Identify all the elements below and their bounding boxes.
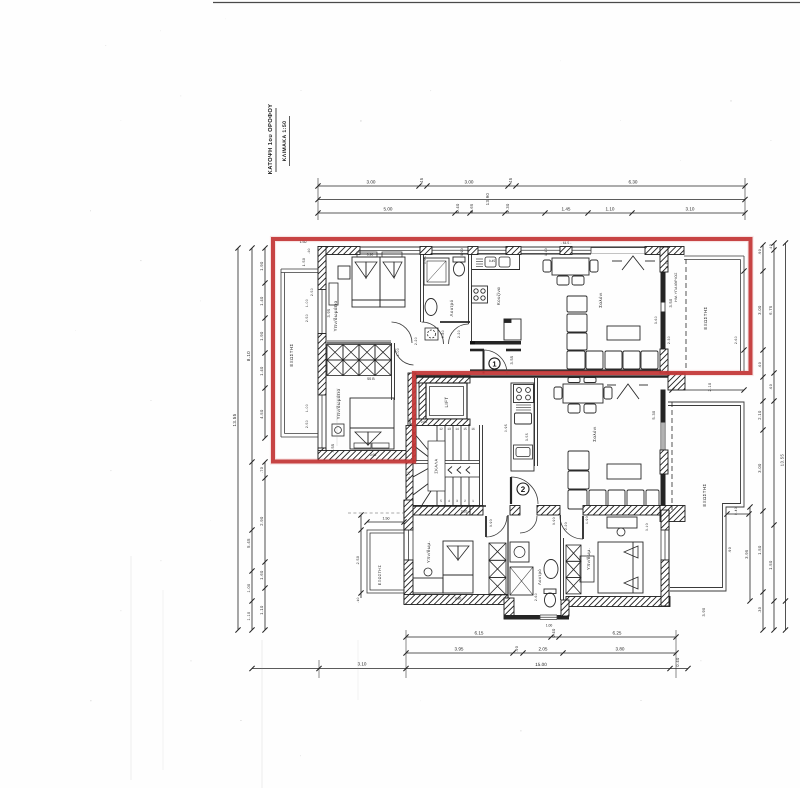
svg-text:13.55: 13.55 <box>232 413 237 426</box>
svg-text:55 Β: 55 Β <box>367 377 375 381</box>
svg-text:6.75: 6.75 <box>768 305 773 315</box>
svg-text:1.40: 1.40 <box>259 296 264 306</box>
svg-text:.10: .10 <box>356 597 360 603</box>
svg-text:0.20: 0.20 <box>665 260 669 268</box>
svg-text:.60: .60 <box>769 384 773 390</box>
svg-text:3.55: 3.55 <box>331 444 335 453</box>
svg-text:2: 2 <box>521 485 526 494</box>
svg-text:3.95: 3.95 <box>455 647 464 652</box>
svg-text:.45: .45 <box>508 177 513 184</box>
svg-text:ΕΞΩΣΤΗΣ: ΕΞΩΣΤΗΣ <box>702 483 707 506</box>
svg-text:1.05: 1.05 <box>423 256 427 264</box>
svg-text:3.00: 3.00 <box>367 180 376 185</box>
svg-text:ΣΚΑΛΑ: ΣΚΑΛΑ <box>434 458 439 473</box>
svg-text:1: 1 <box>472 499 474 503</box>
svg-text:2.05: 2.05 <box>539 647 548 652</box>
svg-text:3.80: 3.80 <box>616 647 625 652</box>
svg-text:2.50: 2.50 <box>356 556 360 565</box>
svg-text:Υπν/δωμ.: Υπν/δωμ. <box>426 541 431 563</box>
svg-text:3.55: 3.55 <box>525 433 529 441</box>
svg-text:3.60: 3.60 <box>654 316 658 324</box>
svg-text:12: 12 <box>439 427 443 431</box>
svg-text:.90: .90 <box>515 646 519 652</box>
svg-text:3.95: 3.95 <box>744 549 749 559</box>
svg-text:2.50: 2.50 <box>310 288 314 296</box>
svg-text:0.80: 0.80 <box>441 330 445 338</box>
svg-text:1.10: 1.10 <box>259 605 264 615</box>
svg-text:16: 16 <box>471 427 475 431</box>
svg-text:2.10: 2.10 <box>708 383 712 392</box>
svg-text:4: 4 <box>448 499 450 503</box>
svg-text:15: 15 <box>463 427 467 431</box>
svg-text:Υπν/δωμ.: Υπν/δωμ. <box>586 548 591 570</box>
svg-text:Λουτρό: Λουτρό <box>537 569 542 585</box>
svg-text:3: 3 <box>456 499 458 503</box>
svg-text:13.90: 13.90 <box>485 192 490 205</box>
svg-text:3.00: 3.00 <box>465 180 474 185</box>
svg-text:1.00: 1.00 <box>305 404 309 412</box>
svg-text:ΚΑΤΟΨΗ 1ου ΟΡΟΦΟΥ: ΚΑΤΟΨΗ 1ου ΟΡΟΦΟΥ <box>267 104 274 175</box>
svg-text:ΕΞΩΣΤΗΣ: ΕΞΩΣΤΗΣ <box>289 343 294 366</box>
svg-text:1.50: 1.50 <box>768 560 773 570</box>
svg-text:0.90: 0.90 <box>552 517 556 525</box>
svg-text:0.45: 0.45 <box>489 259 495 263</box>
svg-text:1.30: 1.30 <box>505 203 510 213</box>
svg-text:.90: .90 <box>728 547 732 553</box>
svg-text:.70: .70 <box>260 467 264 473</box>
svg-text:Σαλόνι: Σαλόνι <box>598 292 603 307</box>
svg-text:8.10: 8.10 <box>246 351 251 361</box>
svg-text:.30: .30 <box>758 607 762 613</box>
svg-text:ΚΛΙΜΑΚΑ 1:50: ΚΛΙΜΑΚΑ 1:50 <box>282 121 288 162</box>
svg-text:3.10: 3.10 <box>645 523 649 531</box>
svg-text:0.40: 0.40 <box>551 628 556 638</box>
svg-text:2.50: 2.50 <box>305 420 309 428</box>
svg-text:1.50: 1.50 <box>383 517 390 521</box>
svg-text:14: 14 <box>455 427 459 431</box>
svg-text:0.90: 0.90 <box>489 519 493 527</box>
svg-text:1.00: 1.00 <box>305 299 309 307</box>
svg-text:ΕΞΩΣΤΗΣ: ΕΞΩΣΤΗΣ <box>378 565 382 586</box>
svg-text:2.90: 2.90 <box>259 516 264 526</box>
svg-text:4.50: 4.50 <box>259 409 264 419</box>
svg-text:0.40: 0.40 <box>734 507 738 515</box>
svg-text:3.90: 3.90 <box>702 608 706 617</box>
svg-text:5: 5 <box>440 499 442 503</box>
svg-text:ΕΞΩΣΤΗΣ: ΕΞΩΣΤΗΣ <box>703 306 708 329</box>
svg-text:2.10: 2.10 <box>757 410 762 420</box>
svg-text:6.25: 6.25 <box>613 631 622 636</box>
svg-text:4.75: 4.75 <box>407 471 411 479</box>
svg-text:5.30: 5.30 <box>652 411 656 420</box>
svg-text:1.90: 1.90 <box>259 261 264 271</box>
svg-text:15.00: 15.00 <box>535 662 547 667</box>
svg-text:1: 1 <box>492 359 496 368</box>
svg-text:.45: .45 <box>419 177 424 184</box>
svg-text:1.00: 1.00 <box>396 348 400 356</box>
svg-text:2: 2 <box>464 499 466 503</box>
svg-text:13: 13 <box>447 427 451 431</box>
svg-text:2.20: 2.20 <box>414 337 418 345</box>
svg-text:6.30: 6.30 <box>629 180 638 185</box>
svg-text:2.20: 2.20 <box>564 522 568 530</box>
svg-text:.20: .20 <box>307 248 311 254</box>
svg-text:1.10: 1.10 <box>247 612 251 621</box>
svg-text:13.55: 13.55 <box>780 453 785 466</box>
svg-text:2.20: 2.20 <box>461 510 468 514</box>
svg-text:1.40: 1.40 <box>259 366 264 376</box>
svg-text:1.10: 1.10 <box>606 207 615 212</box>
svg-text:Σαλόνι: Σαλόνι <box>592 426 597 441</box>
svg-text:0.90: 0.90 <box>370 453 377 457</box>
svg-text:.60: .60 <box>758 362 762 368</box>
svg-text:Κουζίνα: Κουζίνα <box>496 287 501 305</box>
svg-text:2.30: 2.30 <box>667 336 671 344</box>
svg-text:3.55: 3.55 <box>510 356 514 365</box>
svg-text:.40: .40 <box>769 244 773 250</box>
svg-text:6.15: 6.15 <box>475 631 484 636</box>
svg-text:1.50: 1.50 <box>757 545 762 555</box>
svg-text:1.50: 1.50 <box>302 258 306 267</box>
svg-text:3.00: 3.00 <box>757 463 762 473</box>
svg-text:ΗΜ.ΥΠΑΙΘΡΙΟΣ: ΗΜ.ΥΠΑΙΘΡΙΟΣ <box>674 272 678 302</box>
svg-text:0.65: 0.65 <box>469 203 474 213</box>
svg-text:1.00: 1.00 <box>247 584 251 593</box>
svg-text:3.10: 3.10 <box>686 207 695 212</box>
svg-text:1.00: 1.00 <box>546 624 553 628</box>
svg-text:3.95: 3.95 <box>327 309 331 318</box>
svg-text:1.45: 1.45 <box>562 207 571 212</box>
svg-text:Λουτρό: Λουτρό <box>449 299 454 316</box>
svg-text:5.45: 5.45 <box>246 538 251 548</box>
svg-text:3.10: 3.10 <box>358 662 367 667</box>
svg-text:2.50: 2.50 <box>305 314 309 322</box>
svg-text:1.90: 1.90 <box>259 331 264 341</box>
svg-text:2.60: 2.60 <box>534 593 538 601</box>
svg-text:3.00: 3.00 <box>757 305 762 315</box>
svg-text:3.50: 3.50 <box>669 299 673 308</box>
svg-text:0.40: 0.40 <box>455 203 460 213</box>
svg-text:2.20: 2.20 <box>457 330 461 338</box>
svg-text:2.60: 2.60 <box>734 336 738 344</box>
svg-text:5.00: 5.00 <box>384 207 393 212</box>
svg-text:0.90: 0.90 <box>455 597 462 601</box>
svg-text:LIFT: LIFT <box>444 396 449 407</box>
svg-text:.90: .90 <box>758 249 762 255</box>
svg-text:0.90: 0.90 <box>367 253 374 257</box>
svg-text:1.60: 1.60 <box>259 570 264 580</box>
svg-text:0.95: 0.95 <box>504 424 508 432</box>
svg-text:1.90: 1.90 <box>585 516 589 524</box>
svg-text:1.10: 1.10 <box>544 248 548 256</box>
svg-text:2.00: 2.00 <box>421 420 427 424</box>
svg-text:0.90: 0.90 <box>460 248 464 256</box>
